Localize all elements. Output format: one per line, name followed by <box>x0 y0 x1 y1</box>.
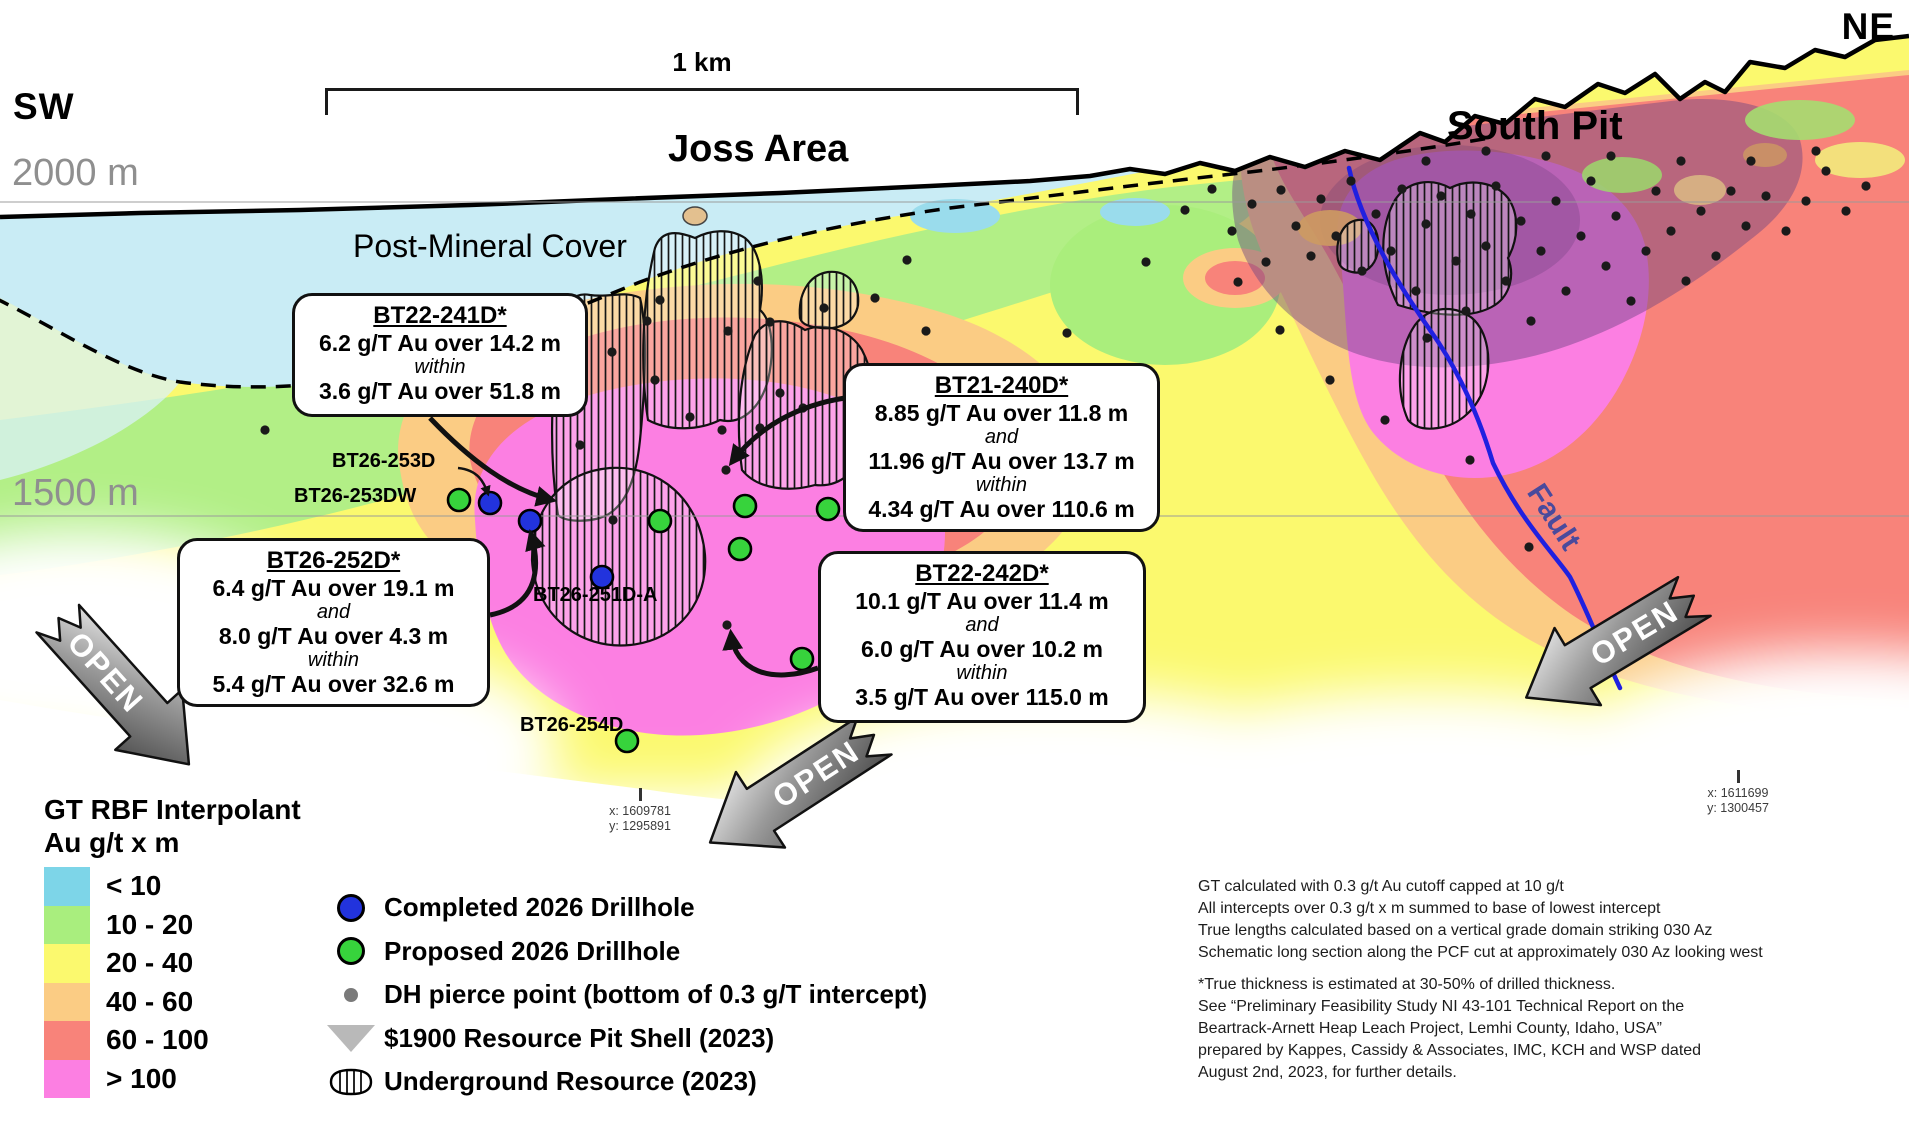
grade-color-swatch <box>44 1060 90 1099</box>
dh-pierce-point <box>1741 221 1750 230</box>
intercept-value: 6.0 g/T Au over 10.2 m <box>825 636 1139 663</box>
dh-pierce-point <box>1516 216 1525 225</box>
drillhole-label-bt26-253d: BT26-253D <box>332 450 435 473</box>
south-pit-title: South Pit <box>1447 104 1623 149</box>
dh-pierce-point <box>1746 156 1755 165</box>
elevation-label-1500m: 1500 m <box>12 472 139 515</box>
coordinate-x: x: 1611699 <box>1690 786 1786 801</box>
intercept-value: 10.1 g/T Au over 11.4 m <box>825 588 1139 615</box>
dh-pierce-point <box>1421 219 1430 228</box>
dh-pierce-point <box>1536 246 1545 255</box>
dh-pierce-point <box>1451 256 1460 265</box>
dh-pierce-point <box>1811 146 1820 155</box>
callout-title: BT22-241D* <box>299 302 581 330</box>
coordinate-y: y: 1295891 <box>592 819 688 834</box>
dh-pierce-point <box>902 255 911 264</box>
dh-pierce-point <box>642 316 651 325</box>
intercept-conjunction: within <box>299 357 581 378</box>
dh-pierce-point <box>1261 257 1270 266</box>
grade-range-label: < 10 <box>90 870 161 902</box>
intercept-conjunction: and <box>825 615 1139 636</box>
dh-pierce-point <box>1501 276 1510 285</box>
intercept-value: 6.4 g/T Au over 19.1 m <box>184 575 483 602</box>
dh-pierce-point <box>819 303 828 312</box>
dh-pierce-point <box>765 317 774 326</box>
grade-range-label: 40 - 60 <box>90 986 193 1018</box>
dh-pierce-point <box>1062 328 1071 337</box>
symbol-legend: Completed 2026 DrillholeProposed 2026 Dr… <box>318 886 927 1104</box>
pit-shell-triangle-icon <box>318 1025 384 1052</box>
intercept-conjunction: and <box>850 427 1153 448</box>
dh-pierce-point <box>1696 206 1705 215</box>
grade-legend-row: 60 - 100 <box>44 1021 301 1060</box>
dot-gray-icon <box>318 988 384 1002</box>
callout-bt21-240d: BT21-240D*8.85 g/T Au over 11.8 mand11.9… <box>843 363 1160 532</box>
intercept-value: 11.96 g/T Au over 13.7 m <box>850 448 1153 475</box>
dh-pierce-point <box>1436 191 1445 200</box>
dh-pierce-point <box>1247 199 1256 208</box>
grade-legend-row: 10 - 20 <box>44 906 301 945</box>
grade-color-swatch <box>44 906 90 945</box>
scale-bar: 1 km <box>325 88 1079 115</box>
proposed-drillhole-marker <box>729 538 751 560</box>
dh-pierce-point <box>1821 166 1830 175</box>
callout-bt22-241d: BT22-241D*6.2 g/T Au over 14.2 mwithin3.… <box>292 293 588 417</box>
dh-pierce-point <box>1141 257 1150 266</box>
grade-color-swatch <box>44 983 90 1022</box>
section-direction-ne: NE <box>1842 6 1895 48</box>
completed-drillhole-marker <box>479 492 501 514</box>
grade-legend-title-line1: GT RBF Interpolant <box>44 793 301 826</box>
symbol-legend-row: Completed 2026 Drillhole <box>318 886 927 930</box>
completed-drillhole-marker <box>519 510 541 532</box>
dh-pierce-point <box>1561 286 1570 295</box>
dh-pierce-point <box>1207 184 1216 193</box>
dh-pierce-point <box>1466 209 1475 218</box>
dh-pierce-point <box>1291 221 1300 230</box>
dh-pierce-point <box>1397 184 1406 193</box>
dh-pierce-point <box>717 425 726 434</box>
grade-legend-row: 40 - 60 <box>44 983 301 1022</box>
dh-pierce-point <box>1422 333 1431 342</box>
coordinate-marker-left: x: 1609781 y: 1295891 <box>592 788 688 834</box>
symbol-legend-row: DH pierce point (bottom of 0.3 g/T inter… <box>318 973 927 1017</box>
intercept-value: 3.6 g/T Au over 51.8 m <box>299 378 581 405</box>
dh-pierce-point <box>921 326 930 335</box>
dh-pierce-point <box>1681 276 1690 285</box>
intercept-value: 4.34 g/T Au over 110.6 m <box>850 496 1153 523</box>
dh-pierce-point <box>1781 226 1790 235</box>
dh-pierce-point <box>1481 241 1490 250</box>
dh-pierce-point <box>1551 196 1560 205</box>
dh-pierce-point <box>575 440 584 449</box>
dh-pierce-point <box>1386 246 1395 255</box>
symbol-label: Completed 2026 Drillhole <box>384 892 695 923</box>
coordinate-x: x: 1609781 <box>592 804 688 819</box>
dh-pierce-point <box>1666 226 1675 235</box>
dh-pierce-point <box>1726 186 1735 195</box>
symbol-label: DH pierce point (bottom of 0.3 g/T inter… <box>384 979 927 1010</box>
proposed-drillhole-marker <box>734 495 756 517</box>
dh-pierce-point <box>1316 194 1325 203</box>
dh-pierce-point <box>1180 205 1189 214</box>
dh-pierce-point <box>1676 156 1685 165</box>
dh-pierce-point <box>1371 209 1380 218</box>
dh-pierce-point <box>1711 251 1720 260</box>
symbol-legend-row: Proposed 2026 Drillhole <box>318 930 927 974</box>
coordinate-marker-right: x: 1611699 y: 1300457 <box>1690 770 1786 816</box>
intercept-value: 6.2 g/T Au over 14.2 m <box>299 330 581 357</box>
notes-references: *True thickness is estimated at 30-50% o… <box>1198 974 1763 1084</box>
dh-pierce-point <box>608 515 617 524</box>
symbol-label: $1900 Resource Pit Shell (2023) <box>384 1023 774 1054</box>
grade-color-swatch <box>44 1021 90 1060</box>
symbol-label: Proposed 2026 Drillhole <box>384 936 680 967</box>
dh-pierce-point <box>722 620 731 629</box>
intercept-conjunction: within <box>850 475 1153 496</box>
grade-legend-title-line2: Au g/t x m <box>44 826 301 859</box>
dh-pierce-point <box>1801 196 1810 205</box>
coordinate-tick <box>1737 770 1740 783</box>
circle-blue-icon <box>318 894 384 922</box>
underground-hatch-icon <box>318 1067 384 1097</box>
grade-legend: GT RBF Interpolant Au g/t x m < 1010 - 2… <box>44 793 301 1098</box>
dh-pierce-point <box>1306 251 1315 260</box>
dh-pierce-point <box>1346 176 1355 185</box>
dh-pierce-point <box>1861 181 1870 190</box>
dh-pierce-point <box>650 375 659 384</box>
post-mineral-cover-label: Post-Mineral Cover <box>353 228 627 265</box>
dh-pierce-point <box>1524 542 1533 551</box>
grade-color-swatch <box>44 867 90 906</box>
long-section-figure: OPENOPENOPEN SW NE 2000 m 1500 m 1 km Jo… <box>0 0 1909 1139</box>
dh-pierce-point <box>1491 181 1500 190</box>
dh-pierce-point <box>775 388 784 397</box>
intercept-value: 3.5 g/T Au over 115.0 m <box>825 684 1139 711</box>
grade-range-label: 60 - 100 <box>90 1024 209 1056</box>
dh-pierce-point <box>1761 191 1770 200</box>
dh-pierce-point <box>1641 246 1650 255</box>
dh-pierce-point <box>753 276 762 285</box>
symbol-label: Underground Resource (2023) <box>384 1066 757 1097</box>
dh-pierce-point <box>1626 296 1635 305</box>
notes-methodology: GT calculated with 0.3 g/t Au cutoff cap… <box>1198 876 1763 964</box>
callout-title: BT22-242D* <box>825 560 1139 588</box>
dh-pierce-point <box>1461 306 1470 315</box>
intercept-value: 8.0 g/T Au over 4.3 m <box>184 623 483 650</box>
dh-pierce-point <box>1601 261 1610 270</box>
dh-pierce-point <box>1606 151 1615 160</box>
callout-bt26-252d: BT26-252D*6.4 g/T Au over 19.1 mand8.0 g… <box>177 538 490 707</box>
grade-range-label: > 100 <box>90 1063 177 1095</box>
drillhole-label-bt26-253dw: BT26-253DW <box>294 485 416 508</box>
circle-green-icon <box>318 937 384 965</box>
intercept-value: 8.85 g/T Au over 11.8 m <box>850 400 1153 427</box>
drillhole-label-bt26-251d-a: BT26-251D-A <box>533 584 657 607</box>
dh-pierce-point <box>685 412 694 421</box>
proposed-drillhole-marker <box>791 648 813 670</box>
proposed-drillhole-marker <box>817 498 839 520</box>
dh-pierce-point <box>1421 156 1430 165</box>
figure-notes: GT calculated with 0.3 g/t Au cutoff cap… <box>1198 876 1763 1094</box>
dh-pierce-point <box>1526 316 1535 325</box>
dh-pierce-point <box>1227 226 1236 235</box>
dh-pierce-point <box>655 295 664 304</box>
intercept-conjunction: and <box>184 602 483 623</box>
grade-legend-row: 20 - 40 <box>44 944 301 983</box>
intercept-conjunction: within <box>825 663 1139 684</box>
grade-range-label: 10 - 20 <box>90 909 193 941</box>
dh-pierce-point <box>1651 186 1660 195</box>
intercept-value: 5.4 g/T Au over 32.6 m <box>184 671 483 698</box>
scale-bar-label: 1 km <box>328 47 1076 78</box>
dh-pierce-point <box>1275 325 1284 334</box>
coordinate-tick <box>639 788 642 801</box>
callout-bt22-242d: BT22-242D*10.1 g/T Au over 11.4 mand6.0 … <box>818 551 1146 723</box>
dh-pierce-point <box>723 326 732 335</box>
dh-pierce-point <box>1465 455 1474 464</box>
joss-area-title: Joss Area <box>668 128 848 171</box>
grade-legend-row: > 100 <box>44 1060 301 1099</box>
dh-pierce-point <box>721 465 730 474</box>
grade-range-label: 20 - 40 <box>90 947 193 979</box>
grade-color-swatch <box>44 944 90 983</box>
dh-pierce-point <box>1611 211 1620 220</box>
callout-title: BT21-240D* <box>850 372 1153 400</box>
dh-pierce-point <box>1586 176 1595 185</box>
dh-pierce-point <box>1325 375 1334 384</box>
dh-pierce-point <box>1357 266 1366 275</box>
intercept-conjunction: within <box>184 650 483 671</box>
dh-pierce-point <box>1233 277 1242 286</box>
symbol-legend-row: Underground Resource (2023) <box>318 1060 927 1104</box>
grade-legend-row: < 10 <box>44 867 301 906</box>
coordinate-y: y: 1300457 <box>1690 801 1786 816</box>
elevation-label-2000m: 2000 m <box>12 152 139 195</box>
dh-pierce-point <box>260 425 269 434</box>
dh-pierce-point <box>870 293 879 302</box>
dh-pierce-point <box>1331 231 1340 240</box>
symbol-legend-row: $1900 Resource Pit Shell (2023) <box>318 1017 927 1061</box>
dh-pierce-point <box>1411 286 1420 295</box>
dh-pierce-point <box>1541 151 1550 160</box>
dh-pierce-point <box>1276 185 1285 194</box>
drillhole-label-bt26-254d: BT26-254D <box>520 714 623 737</box>
dh-pierce-point <box>1841 206 1850 215</box>
proposed-drillhole-marker <box>448 489 470 511</box>
dh-pierce-point <box>1576 231 1585 240</box>
callout-title: BT26-252D* <box>184 547 483 575</box>
section-direction-sw: SW <box>13 86 75 128</box>
dh-pierce-point <box>1380 415 1389 424</box>
proposed-drillhole-marker <box>649 510 671 532</box>
dh-pierce-point <box>607 347 616 356</box>
